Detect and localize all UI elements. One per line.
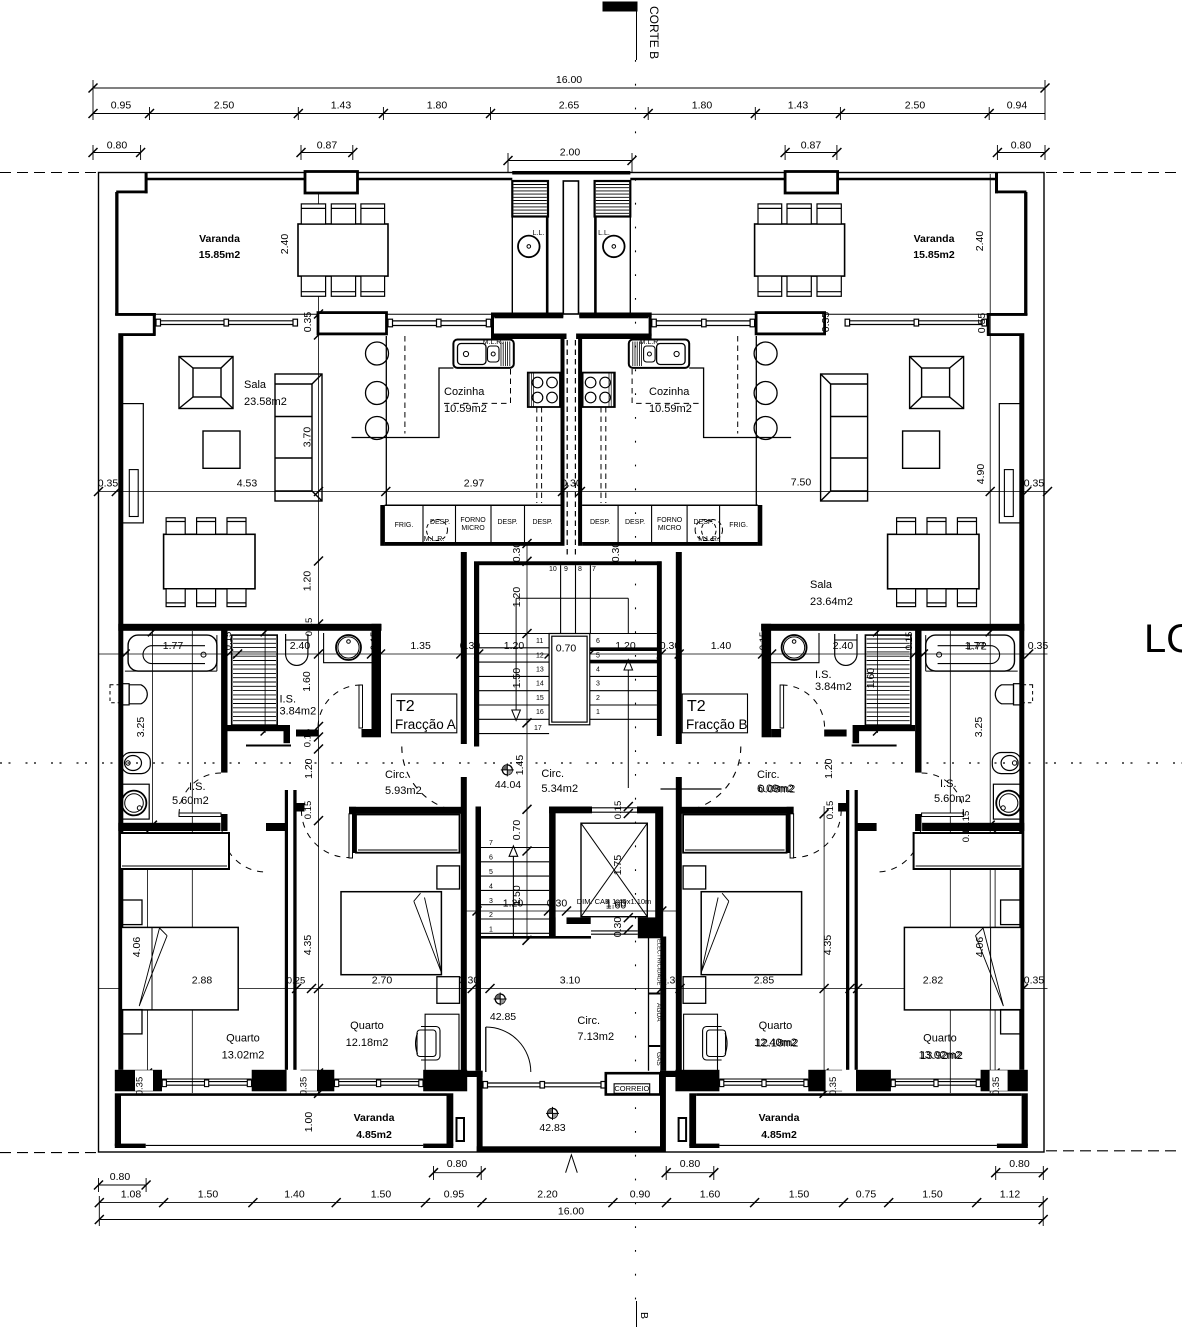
svg-text:FORNO: FORNO <box>460 517 486 524</box>
svg-text:1.72: 1.72 <box>966 641 987 653</box>
svg-text:0.30: 0.30 <box>660 640 681 652</box>
svg-text:1.80: 1.80 <box>692 100 713 112</box>
svg-text:1.20: 1.20 <box>504 640 525 652</box>
svg-text:1.60: 1.60 <box>865 668 877 689</box>
svg-text:1.20: 1.20 <box>823 758 835 779</box>
svg-text:0.15: 0.15 <box>304 618 315 637</box>
svg-text:15.85m2: 15.85m2 <box>199 249 241 261</box>
svg-text:T2: T2 <box>687 698 706 715</box>
svg-text:Fracção A: Fracção A <box>395 717 456 732</box>
svg-text:0.35: 0.35 <box>1028 640 1049 652</box>
svg-text:0.87: 0.87 <box>801 140 822 152</box>
svg-text:5.93m2: 5.93m2 <box>385 785 422 797</box>
svg-text:Fracção B: Fracção B <box>686 717 748 732</box>
svg-text:0.80: 0.80 <box>447 1158 468 1170</box>
svg-text:5.34m2: 5.34m2 <box>541 783 578 795</box>
svg-text:42.85: 42.85 <box>490 1011 516 1023</box>
svg-text:0.30: 0.30 <box>547 898 568 910</box>
svg-text:1.08: 1.08 <box>121 1189 142 1201</box>
svg-text:1.35: 1.35 <box>410 640 431 652</box>
svg-text:1.20: 1.20 <box>303 758 315 779</box>
svg-text:M.L.R.: M.L.R. <box>424 536 445 543</box>
svg-text:0.35: 0.35 <box>1024 975 1045 987</box>
svg-text:1.20: 1.20 <box>302 571 314 592</box>
svg-text:0.94: 0.94 <box>1007 100 1028 112</box>
svg-text:2.20: 2.20 <box>537 1189 558 1201</box>
svg-text:13.92m2: 13.92m2 <box>920 1050 963 1062</box>
svg-text:0.55: 0.55 <box>976 313 988 334</box>
svg-text:4: 4 <box>596 667 600 674</box>
svg-text:5.60m2: 5.60m2 <box>934 793 971 805</box>
svg-text:0.35: 0.35 <box>828 1077 839 1096</box>
svg-text:0.70: 0.70 <box>556 643 577 655</box>
svg-text:10.59m2: 10.59m2 <box>444 403 487 415</box>
svg-text:2.65: 2.65 <box>559 100 580 112</box>
svg-text:Sala: Sala <box>244 379 267 391</box>
svg-text:LO: LO <box>1144 617 1182 661</box>
svg-text:4: 4 <box>489 884 493 891</box>
svg-text:4.85m2: 4.85m2 <box>356 1129 392 1141</box>
svg-text:4.06: 4.06 <box>131 937 143 958</box>
svg-text:0.15: 0.15 <box>961 824 972 843</box>
svg-text:0.30: 0.30 <box>561 478 582 490</box>
svg-text:0.25: 0.25 <box>287 976 306 987</box>
svg-text:7.50: 7.50 <box>791 477 812 489</box>
svg-text:DESP.: DESP. <box>694 519 714 526</box>
svg-text:0.75: 0.75 <box>856 1189 877 1201</box>
svg-text:CORREIO: CORREIO <box>614 1084 649 1093</box>
svg-text:2.50: 2.50 <box>214 100 235 112</box>
svg-text:0.35: 0.35 <box>98 478 119 490</box>
svg-text:3.70: 3.70 <box>302 427 314 448</box>
svg-text:3.25: 3.25 <box>973 717 985 738</box>
svg-text:0.30: 0.30 <box>612 917 624 938</box>
svg-text:1.20: 1.20 <box>615 640 636 652</box>
svg-text:0.95: 0.95 <box>444 1189 465 1201</box>
svg-text:2.85: 2.85 <box>754 975 775 987</box>
svg-text:1.60: 1.60 <box>301 671 313 692</box>
svg-text:Varanda: Varanda <box>199 233 240 245</box>
svg-text:GÁS: GÁS <box>655 1052 664 1066</box>
svg-text:FRIG.: FRIG. <box>395 522 414 529</box>
svg-text:0.15: 0.15 <box>369 632 380 651</box>
svg-text:10: 10 <box>549 566 557 573</box>
svg-text:4.85m2: 4.85m2 <box>761 1129 797 1141</box>
svg-text:6: 6 <box>489 855 493 862</box>
svg-text:M.L.R.: M.L.R. <box>698 536 719 543</box>
svg-text:2: 2 <box>596 695 600 702</box>
svg-text:1.50: 1.50 <box>198 1189 219 1201</box>
svg-text:Quarto: Quarto <box>759 1020 793 1032</box>
svg-text:14: 14 <box>536 681 544 688</box>
svg-text:0.30: 0.30 <box>511 542 523 563</box>
svg-text:0.35: 0.35 <box>1024 478 1045 490</box>
svg-text:I.S.: I.S. <box>280 694 297 706</box>
svg-text:2.40: 2.40 <box>974 231 986 252</box>
svg-text:1.50: 1.50 <box>922 1189 943 1201</box>
svg-text:12: 12 <box>536 653 544 660</box>
svg-text:ÁGUA: ÁGUA <box>655 1003 664 1022</box>
svg-text:7.13m2: 7.13m2 <box>577 1031 614 1043</box>
svg-text:FORNO: FORNO <box>657 517 683 524</box>
svg-text:MICRO: MICRO <box>461 525 485 532</box>
svg-text:0.80: 0.80 <box>110 1171 131 1183</box>
svg-text:5.60m2: 5.60m2 <box>172 795 209 807</box>
svg-text:4.35: 4.35 <box>822 935 834 956</box>
svg-text:Varanda: Varanda <box>759 1112 800 1124</box>
svg-text:4.35: 4.35 <box>302 935 314 956</box>
svg-text:0.35: 0.35 <box>135 1077 146 1096</box>
svg-text:DESP.: DESP. <box>590 519 610 526</box>
svg-text:1.50: 1.50 <box>789 1189 810 1201</box>
svg-text:7: 7 <box>592 566 596 573</box>
svg-text:M.L.R.: M.L.R. <box>483 339 504 346</box>
svg-text:0.35: 0.35 <box>991 1077 1002 1096</box>
svg-text:Circ.: Circ. <box>757 769 780 781</box>
svg-text:1.77: 1.77 <box>163 640 184 652</box>
svg-text:2.40: 2.40 <box>833 640 854 652</box>
svg-text:0.80: 0.80 <box>1009 1158 1030 1170</box>
svg-text:DESP.: DESP. <box>497 519 517 526</box>
svg-text:0.95: 0.95 <box>111 100 132 112</box>
svg-text:10.59m2: 10.59m2 <box>649 403 692 415</box>
svg-text:1.00: 1.00 <box>303 1112 315 1133</box>
svg-text:1.80: 1.80 <box>427 100 448 112</box>
svg-text:1.50: 1.50 <box>371 1189 392 1201</box>
svg-text:0.15: 0.15 <box>758 632 769 651</box>
svg-text:DESP.: DESP. <box>625 519 645 526</box>
svg-text:3.10: 3.10 <box>560 975 581 987</box>
svg-text:0.80: 0.80 <box>107 140 128 152</box>
svg-text:3.84m2: 3.84m2 <box>815 681 852 693</box>
svg-text:44.04: 44.04 <box>495 779 521 791</box>
svg-text:3.84m2: 3.84m2 <box>280 706 317 718</box>
svg-text:0.15: 0.15 <box>223 632 234 651</box>
svg-text:13.02m2: 13.02m2 <box>222 1050 265 1062</box>
svg-text:8: 8 <box>578 566 582 573</box>
svg-text:1.75: 1.75 <box>612 855 624 876</box>
svg-text:MICRO: MICRO <box>658 525 682 532</box>
svg-text:Quarto: Quarto <box>226 1033 260 1045</box>
svg-text:Varanda: Varanda <box>354 1112 395 1124</box>
svg-text:3: 3 <box>596 681 600 688</box>
svg-text:Quarto: Quarto <box>923 1033 957 1045</box>
svg-text:0.15: 0.15 <box>904 632 915 651</box>
svg-text:I.S.: I.S. <box>189 781 206 793</box>
svg-text:2.40: 2.40 <box>279 234 291 255</box>
svg-text:1.50: 1.50 <box>511 668 523 689</box>
svg-text:Circ.: Circ. <box>541 768 564 780</box>
svg-text:23.64m2: 23.64m2 <box>810 596 853 608</box>
svg-text:I.S.: I.S. <box>815 669 832 681</box>
svg-text:2.70: 2.70 <box>372 975 393 987</box>
svg-text:2: 2 <box>489 912 493 919</box>
svg-text:1.43: 1.43 <box>788 100 809 112</box>
svg-text:0.15: 0.15 <box>303 801 314 820</box>
svg-text:0.30: 0.30 <box>661 975 682 987</box>
svg-text:6: 6 <box>596 638 600 645</box>
svg-text:1.12: 1.12 <box>1000 1189 1021 1201</box>
svg-text:7: 7 <box>489 840 493 847</box>
svg-text:Cozinha: Cozinha <box>444 386 485 398</box>
svg-text:0.30: 0.30 <box>459 975 480 987</box>
svg-text:1.40: 1.40 <box>284 1189 305 1201</box>
svg-text:1: 1 <box>596 709 600 716</box>
svg-text:23.58m2: 23.58m2 <box>244 396 287 408</box>
svg-text:0.87: 0.87 <box>317 140 338 152</box>
svg-text:2.40: 2.40 <box>290 640 311 652</box>
svg-text:1.60: 1.60 <box>606 898 627 910</box>
svg-text:5: 5 <box>596 653 600 660</box>
svg-text:0.35: 0.35 <box>820 312 832 333</box>
svg-text:T2: T2 <box>396 698 415 715</box>
svg-text:0.35: 0.35 <box>299 1077 310 1096</box>
svg-text:4.06: 4.06 <box>974 937 986 958</box>
svg-text:1.45: 1.45 <box>514 755 526 776</box>
svg-text:13: 13 <box>536 667 544 674</box>
svg-text:CORTE B: CORTE B <box>647 6 661 59</box>
svg-text:3.25: 3.25 <box>135 717 147 738</box>
svg-text:2.50: 2.50 <box>905 100 926 112</box>
svg-text:0.35: 0.35 <box>302 312 314 333</box>
svg-text:0.80: 0.80 <box>680 1158 701 1170</box>
svg-text:0.15: 0.15 <box>613 801 624 820</box>
svg-text:0.70: 0.70 <box>511 820 523 841</box>
svg-text:0.08m2: 0.08m2 <box>759 784 796 796</box>
svg-text:L.L.: L.L. <box>598 230 610 237</box>
svg-text:L.L.: L.L. <box>533 230 545 237</box>
svg-text:9: 9 <box>564 566 568 573</box>
svg-text:Quarto: Quarto <box>350 1020 384 1032</box>
svg-text:1.40: 1.40 <box>711 640 732 652</box>
svg-text:1.43: 1.43 <box>331 100 352 112</box>
svg-text:42.83: 42.83 <box>539 1122 565 1134</box>
svg-text:Circ.: Circ. <box>385 769 408 781</box>
svg-text:11: 11 <box>536 638 543 645</box>
svg-text:16.00: 16.00 <box>556 74 582 86</box>
svg-text:16.00: 16.00 <box>558 1206 584 1218</box>
svg-text:12.18m2: 12.18m2 <box>756 1038 799 1050</box>
svg-text:0.80: 0.80 <box>1011 140 1032 152</box>
svg-text:B: B <box>638 1312 650 1319</box>
svg-text:16: 16 <box>536 709 544 716</box>
svg-text:2.97: 2.97 <box>464 478 485 490</box>
svg-text:3: 3 <box>489 898 493 905</box>
svg-text:12.18m2: 12.18m2 <box>346 1037 389 1049</box>
svg-text:4.90: 4.90 <box>975 464 987 485</box>
svg-text:2.88: 2.88 <box>192 975 213 987</box>
svg-text:M.L.R.: M.L.R. <box>640 339 661 346</box>
svg-text:15: 15 <box>536 695 544 702</box>
svg-text:DESP.: DESP. <box>430 519 450 526</box>
svg-text:Cozinha: Cozinha <box>649 386 690 398</box>
svg-text:0.15: 0.15 <box>303 729 314 748</box>
svg-text:15.85m2: 15.85m2 <box>913 249 955 261</box>
svg-text:Circ.: Circ. <box>577 1015 600 1027</box>
svg-text:DESP.: DESP. <box>532 519 552 526</box>
svg-text:0.30: 0.30 <box>610 542 622 563</box>
svg-text:0.15: 0.15 <box>825 801 836 820</box>
svg-text:1.20: 1.20 <box>511 587 523 608</box>
svg-text:Sala: Sala <box>810 579 833 591</box>
svg-text:1: 1 <box>489 927 493 934</box>
svg-text:2.82: 2.82 <box>923 975 944 987</box>
svg-text:1.50: 1.50 <box>511 885 523 906</box>
svg-text:1.60: 1.60 <box>700 1189 721 1201</box>
svg-text:17: 17 <box>534 725 542 732</box>
svg-text:0.30: 0.30 <box>460 640 481 652</box>
svg-text:0.90: 0.90 <box>630 1189 651 1201</box>
svg-text:4.53: 4.53 <box>237 478 258 490</box>
svg-text:5: 5 <box>489 869 493 876</box>
svg-text:FRIG.: FRIG. <box>729 522 748 529</box>
svg-text:I.S.: I.S. <box>940 778 957 790</box>
svg-text:Varanda: Varanda <box>914 233 955 245</box>
svg-text:2.00: 2.00 <box>560 147 581 159</box>
